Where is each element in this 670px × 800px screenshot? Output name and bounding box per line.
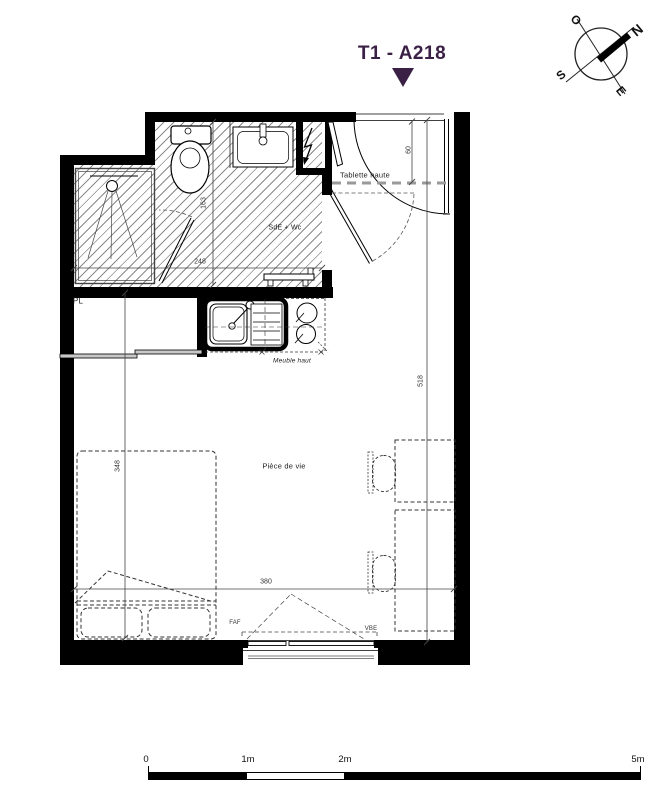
window-bay <box>237 594 383 659</box>
scale-label-2m: 2m <box>338 754 351 765</box>
scale-label-1m: 1m <box>241 754 254 765</box>
entry-door <box>354 114 450 214</box>
hotplate-2 <box>297 325 316 344</box>
sink-bowl <box>210 304 247 344</box>
electrical-box <box>303 122 343 166</box>
drainboard <box>251 304 282 345</box>
closet-sliding-doors <box>60 350 202 358</box>
hotplate-1 <box>297 303 317 323</box>
scale-label-0: 0 <box>143 754 148 765</box>
dimension-lines <box>71 117 457 645</box>
pillow-2 <box>148 608 210 637</box>
bed <box>75 451 216 639</box>
label-faf: FAF <box>229 620 241 626</box>
towel-radiator <box>264 268 314 286</box>
scale-label-5m: 5m <box>631 754 644 765</box>
table-2 <box>395 510 455 631</box>
shower <box>76 169 155 284</box>
label-meuble-haut: Meuble haut <box>273 358 311 365</box>
pillow-1 <box>81 608 142 637</box>
floor-plan-page: T1 - A218 O N S E Tablette haute SdE + W… <box>0 0 670 800</box>
dim-248: 248 <box>194 259 206 266</box>
scale-segment-2-5 <box>345 772 640 780</box>
dim-518: 518 <box>418 375 425 387</box>
label-closet: PL <box>73 297 83 306</box>
scale-segment-0-1 <box>148 772 246 780</box>
kitchen-unit <box>205 298 328 355</box>
lightning-bolt-icon <box>305 128 313 161</box>
label-bathroom: SdE + Wc <box>269 225 302 232</box>
scale-segment-1-2 <box>246 772 345 780</box>
title-pointer-icon <box>392 68 414 87</box>
tables <box>395 440 455 631</box>
toilet <box>171 126 211 193</box>
label-vbe: VBE <box>365 626 378 632</box>
table-1 <box>395 440 455 502</box>
label-tablette-haute: Tablette haute <box>340 171 390 180</box>
shower-door <box>159 210 194 283</box>
plan-title: T1 - A218 <box>358 43 446 65</box>
dim-380: 380 <box>260 579 272 586</box>
dim-348: 348 <box>115 460 122 472</box>
label-living-room: Pièce de vie <box>262 462 305 471</box>
dim-60: 60 <box>406 146 413 154</box>
floor-plan-drawing <box>0 0 670 800</box>
chairs <box>368 452 396 593</box>
shower-head-icon <box>107 181 118 192</box>
dim-163: 163 <box>201 197 208 209</box>
washbasin <box>230 122 293 168</box>
